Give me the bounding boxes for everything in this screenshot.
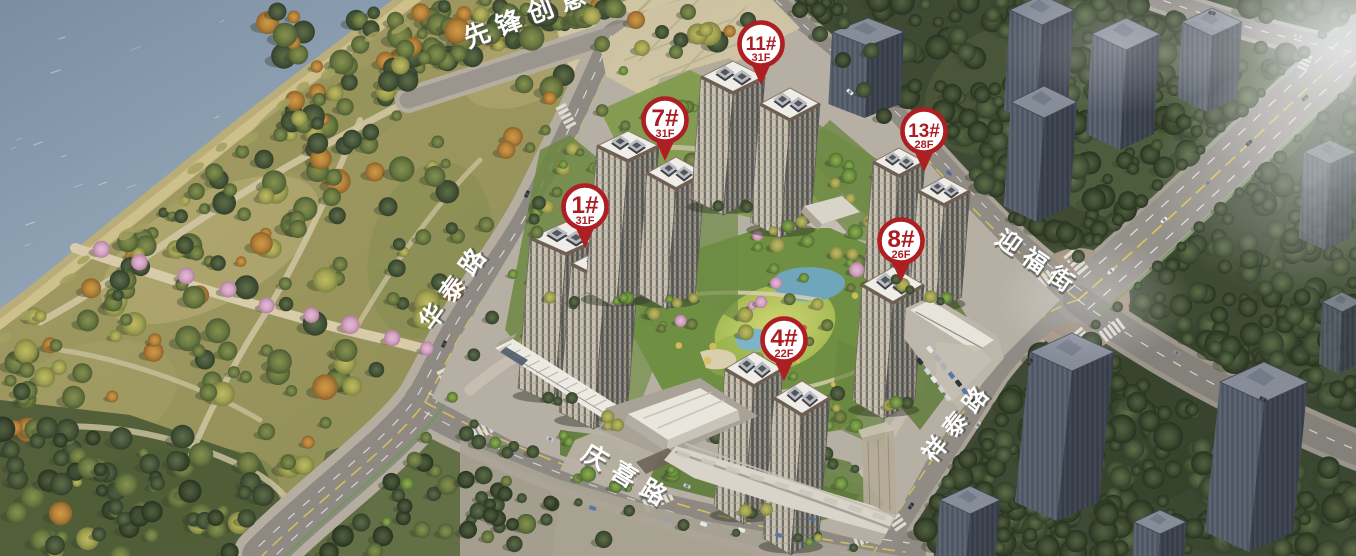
svg-text:31F: 31F bbox=[656, 128, 675, 140]
svg-text:31F: 31F bbox=[752, 52, 771, 64]
svg-text:26F: 26F bbox=[892, 249, 911, 261]
svg-text:22F: 22F bbox=[775, 348, 794, 360]
svg-text:28F: 28F bbox=[915, 139, 934, 151]
svg-text:31F: 31F bbox=[576, 215, 595, 227]
